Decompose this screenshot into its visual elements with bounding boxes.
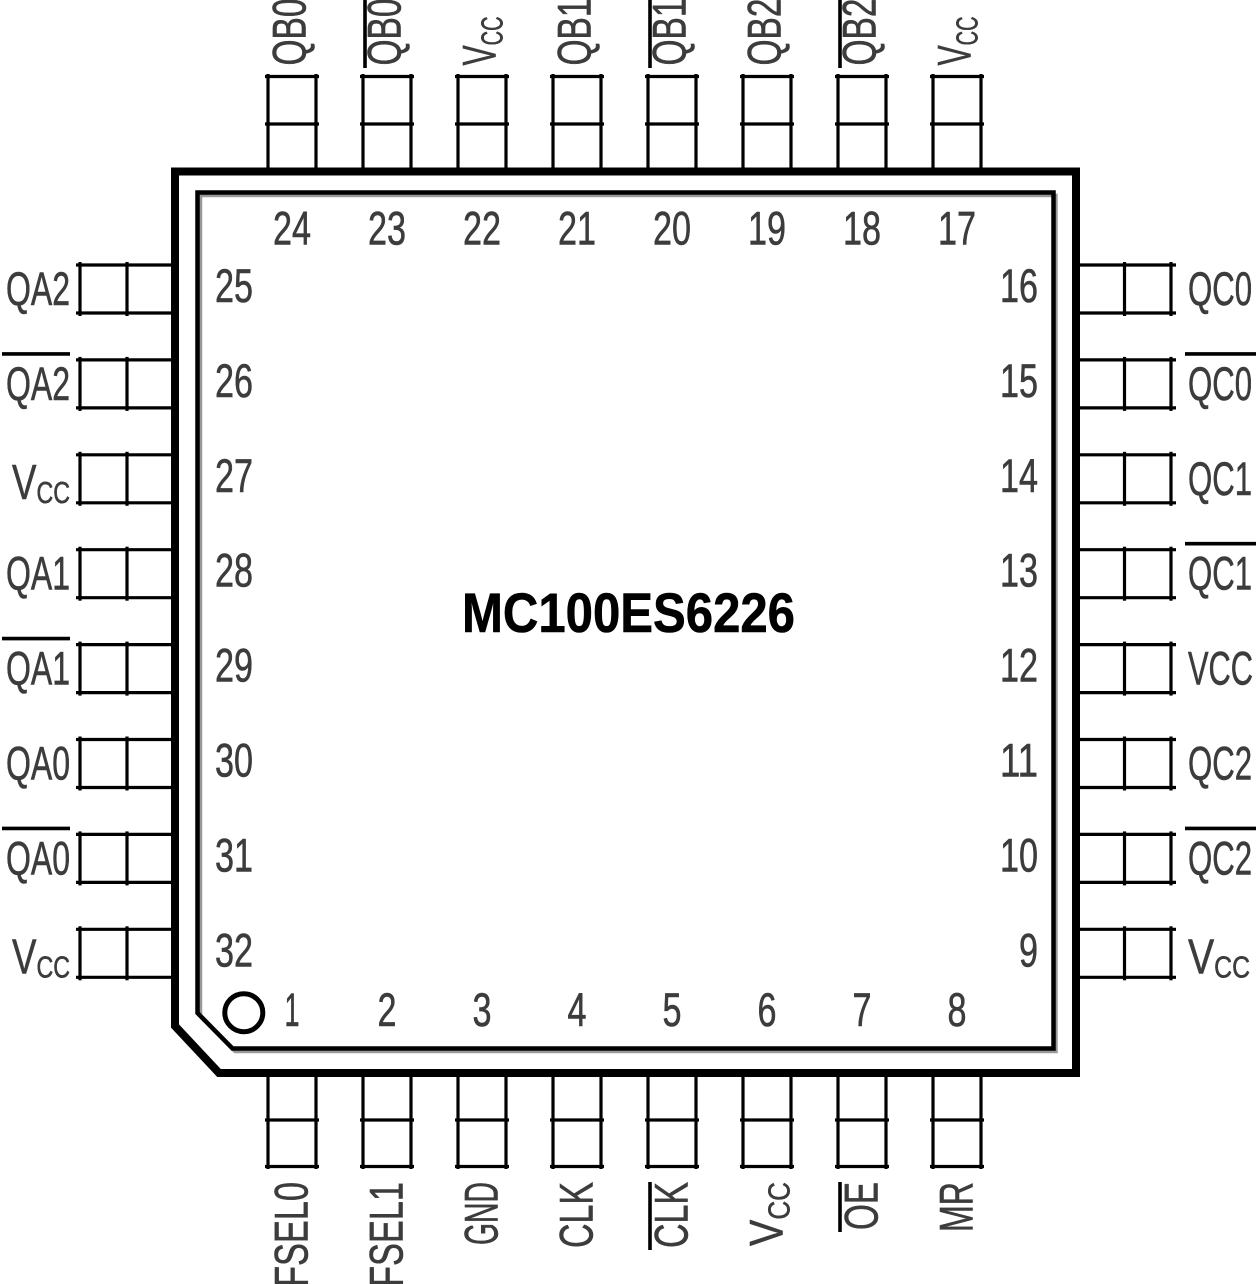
svg-text:3: 3 [473,983,492,1036]
svg-text:20: 20 [653,202,691,255]
svg-text:CLK: CLK [550,1182,603,1248]
svg-text:QA0: QA0 [6,831,70,884]
svg-text:QA1: QA1 [6,642,70,695]
svg-text:MC100ES6226: MC100ES6226 [462,581,795,644]
svg-text:23: 23 [368,202,406,255]
svg-text:QC2: QC2 [1188,831,1252,884]
svg-text:QB1: QB1 [548,0,601,66]
svg-text:22: 22 [463,202,501,255]
svg-text:16: 16 [1000,259,1038,312]
svg-text:27: 27 [215,449,253,502]
svg-text:7: 7 [853,983,872,1036]
svg-text:19: 19 [748,202,786,255]
svg-text:10: 10 [1000,828,1038,881]
svg-text:OE: OE [835,1182,888,1230]
svg-text:12: 12 [1000,639,1038,692]
svg-text:QB2: QB2 [738,0,791,66]
svg-text:QA1: QA1 [6,547,70,600]
svg-text:11: 11 [1000,734,1038,787]
svg-text:QA2: QA2 [6,357,70,410]
svg-text:QB0: QB0 [263,0,316,66]
svg-text:CLK: CLK [645,1182,698,1248]
svg-text:1: 1 [285,983,300,1036]
svg-text:2: 2 [378,983,397,1036]
svg-text:6: 6 [758,983,777,1036]
svg-text:VCC: VCC [1188,642,1253,695]
svg-text:32: 32 [215,923,253,976]
svg-text:GND: GND [455,1182,508,1245]
svg-text:18: 18 [843,202,881,255]
svg-text:QC1: QC1 [1188,452,1252,505]
svg-text:QC1: QC1 [1188,547,1252,600]
svg-text:15: 15 [1000,354,1038,407]
svg-text:4: 4 [568,983,587,1036]
svg-text:9: 9 [1019,923,1038,976]
svg-text:QC2: QC2 [1188,737,1252,790]
svg-text:8: 8 [948,983,967,1036]
svg-text:QA0: QA0 [6,737,70,790]
svg-text:29: 29 [215,639,253,692]
svg-text:26: 26 [215,354,253,407]
svg-text:MR: MR [930,1182,983,1232]
svg-text:QC0: QC0 [1188,262,1252,315]
svg-text:28: 28 [215,544,253,597]
svg-text:14: 14 [1000,449,1038,502]
svg-text:FSEL1: FSEL1 [360,1182,413,1284]
svg-text:30: 30 [215,734,253,787]
svg-text:24: 24 [273,202,311,255]
svg-text:5: 5 [663,983,682,1036]
svg-text:13: 13 [1000,544,1038,597]
svg-text:QA2: QA2 [6,262,70,315]
svg-text:21: 21 [558,202,596,255]
svg-text:17: 17 [938,202,976,255]
svg-text:QC0: QC0 [1188,357,1252,410]
svg-text:25: 25 [215,259,253,312]
svg-text:FSEL0: FSEL0 [265,1182,318,1284]
svg-text:31: 31 [215,828,253,881]
